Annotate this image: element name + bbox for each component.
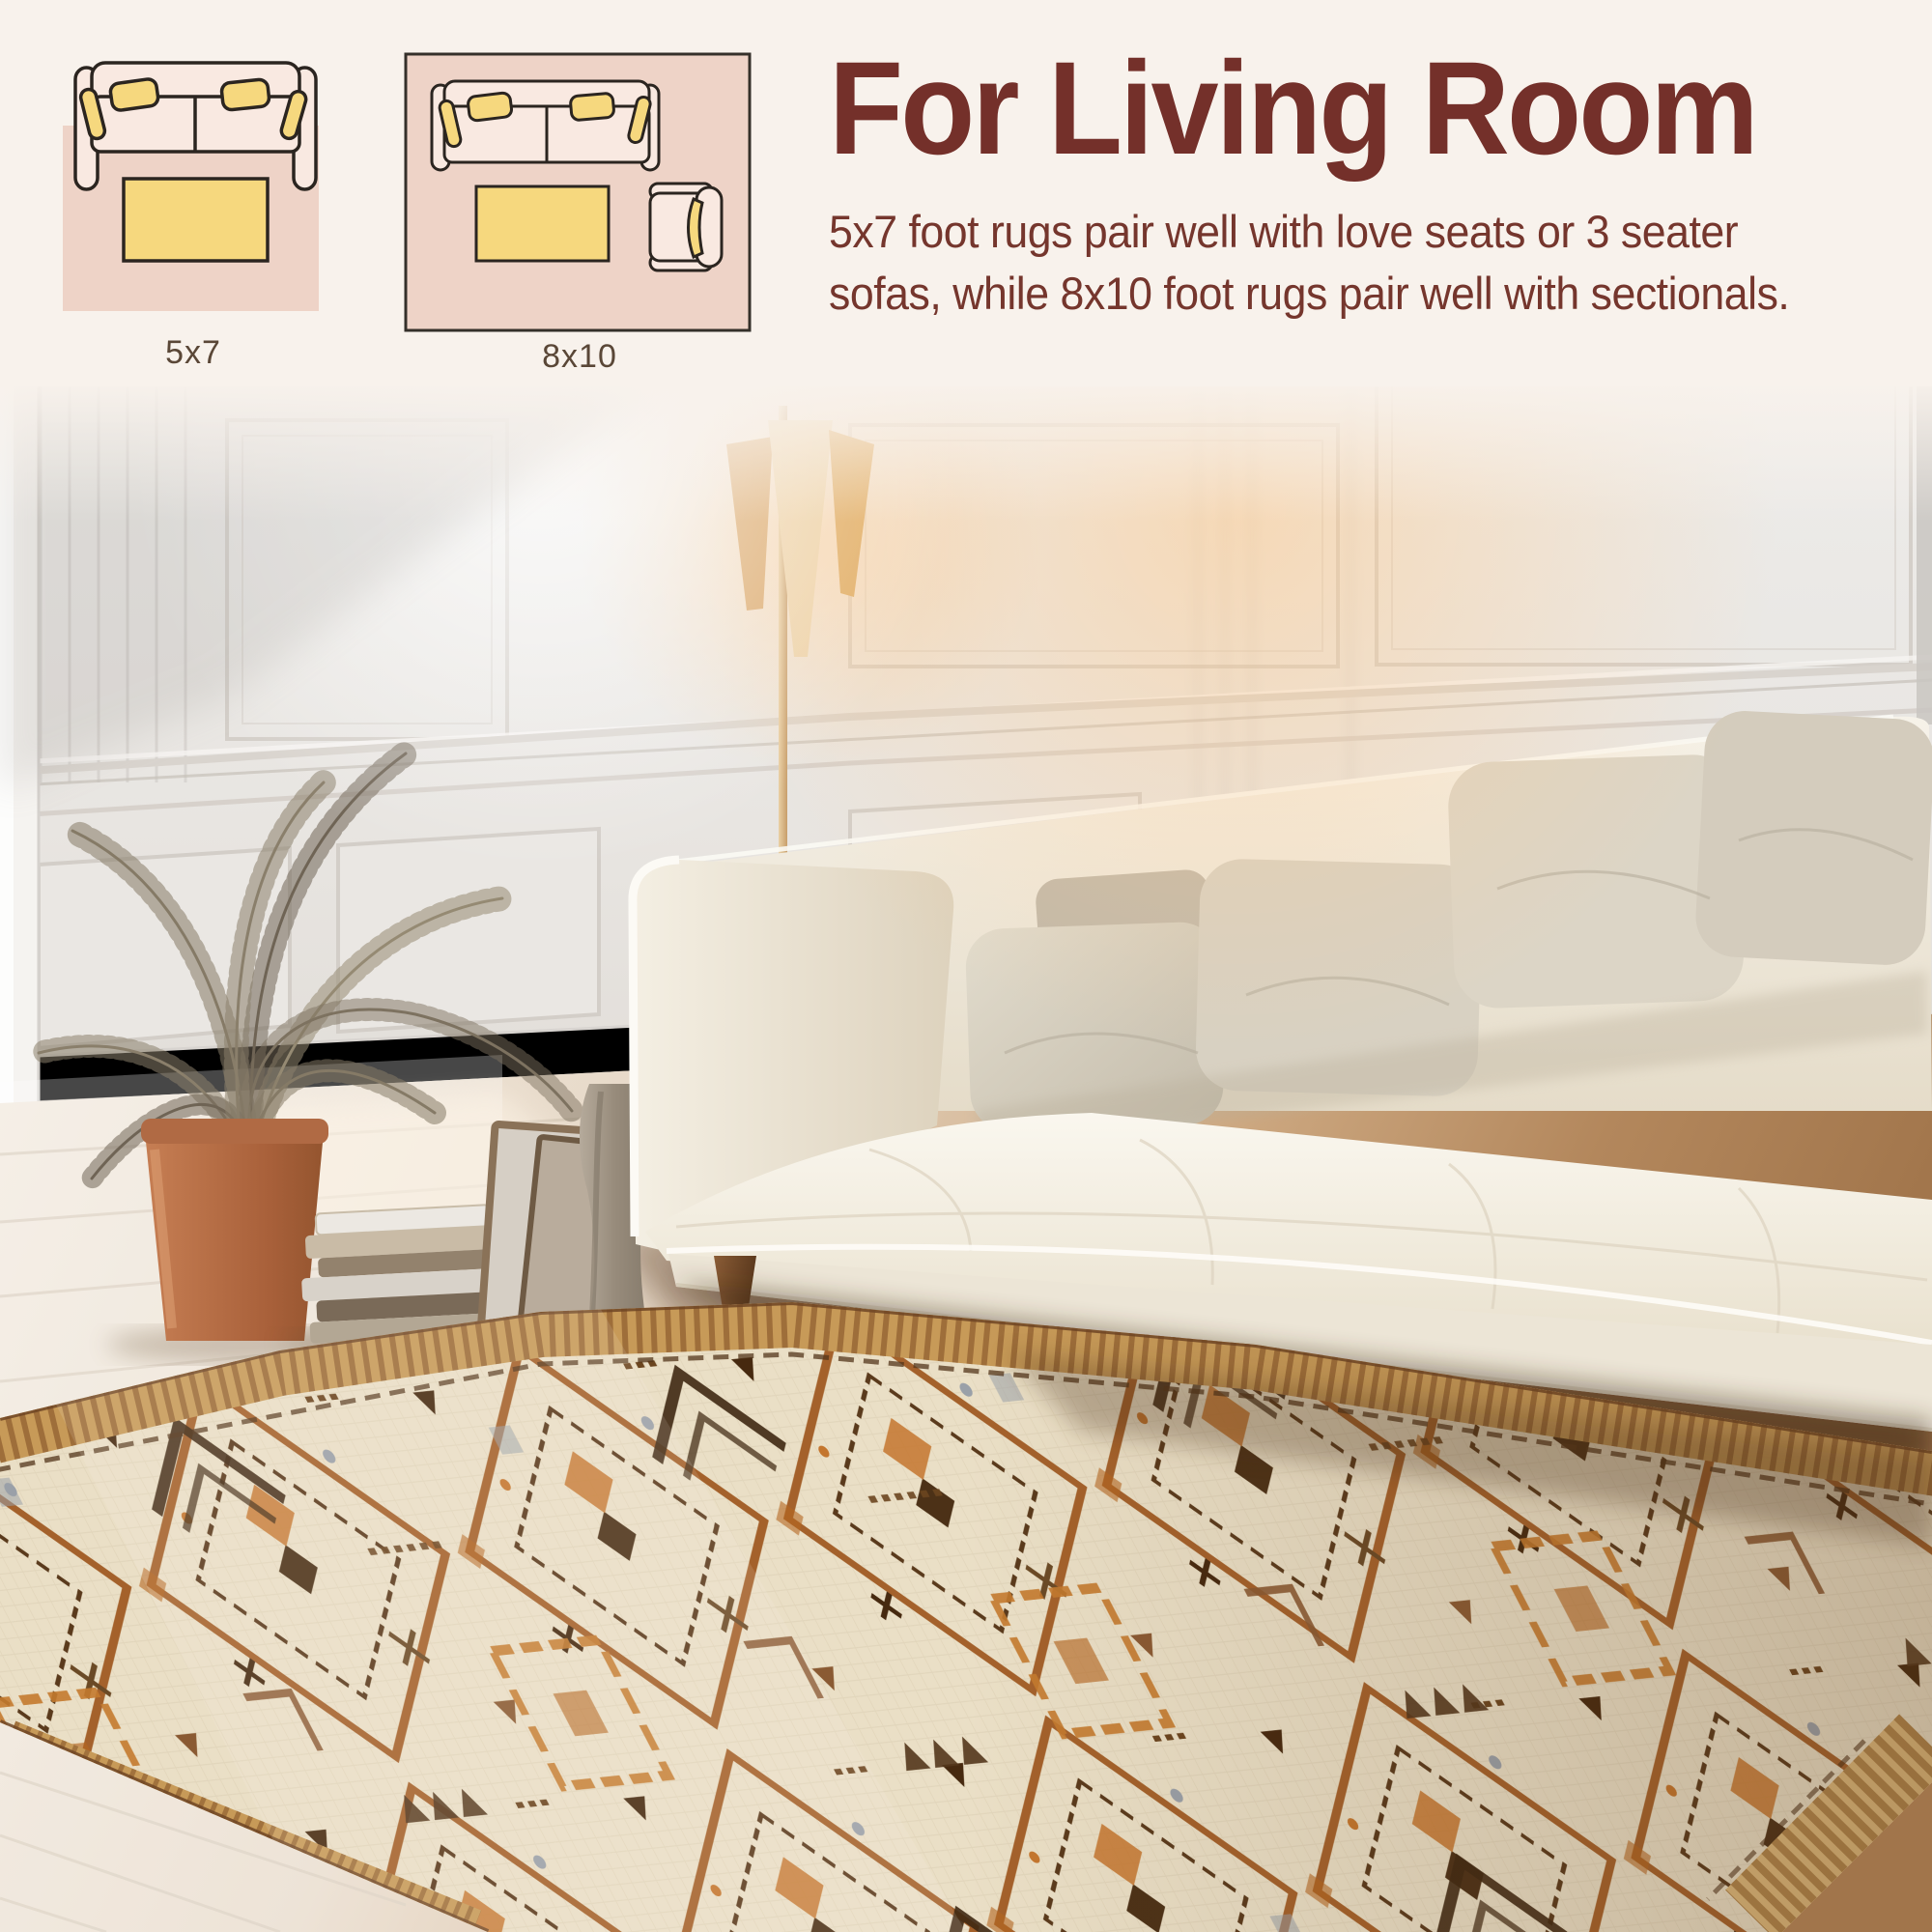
rug-size-diagram-8x10 [401,39,758,338]
product-infographic: 5x7 8x10 For Living Room 5x7 foot rugs p… [0,0,1932,1932]
header-band: 5x7 8x10 For Living Room 5x7 foot rugs p… [0,0,1932,386]
top-fade [0,377,1932,522]
page-description: 5x7 foot rugs pair well with love seats … [829,201,1789,325]
rug-size-label-8x10: 8x10 [401,338,758,376]
diagram-coffee-table [476,186,609,261]
page-title: For Living Room [829,43,1756,175]
living-room-photo [0,377,1932,1932]
armchair-pillow [689,199,703,257]
description-line-1: 5x7 foot rugs pair well with love seats … [829,201,1789,263]
diagram-sofa-top-view [432,81,659,170]
pillow-4 [1693,709,1932,967]
diagram-armchair [650,184,722,270]
sofa-pillow [468,92,513,121]
diagram-coffee-table [124,179,268,261]
terracotta-pot [141,1119,328,1341]
sofa-pillow [570,93,614,121]
rug-size-diagram-5x7 [58,39,328,328]
sofa-pillow [221,79,270,111]
rug-size-label-5x7: 5x7 [58,334,328,372]
living-room-scene [0,377,1932,1932]
description-line-2: sofas, while 8x10 foot rugs pair well wi… [829,263,1789,325]
sofa-pillow [109,78,158,111]
